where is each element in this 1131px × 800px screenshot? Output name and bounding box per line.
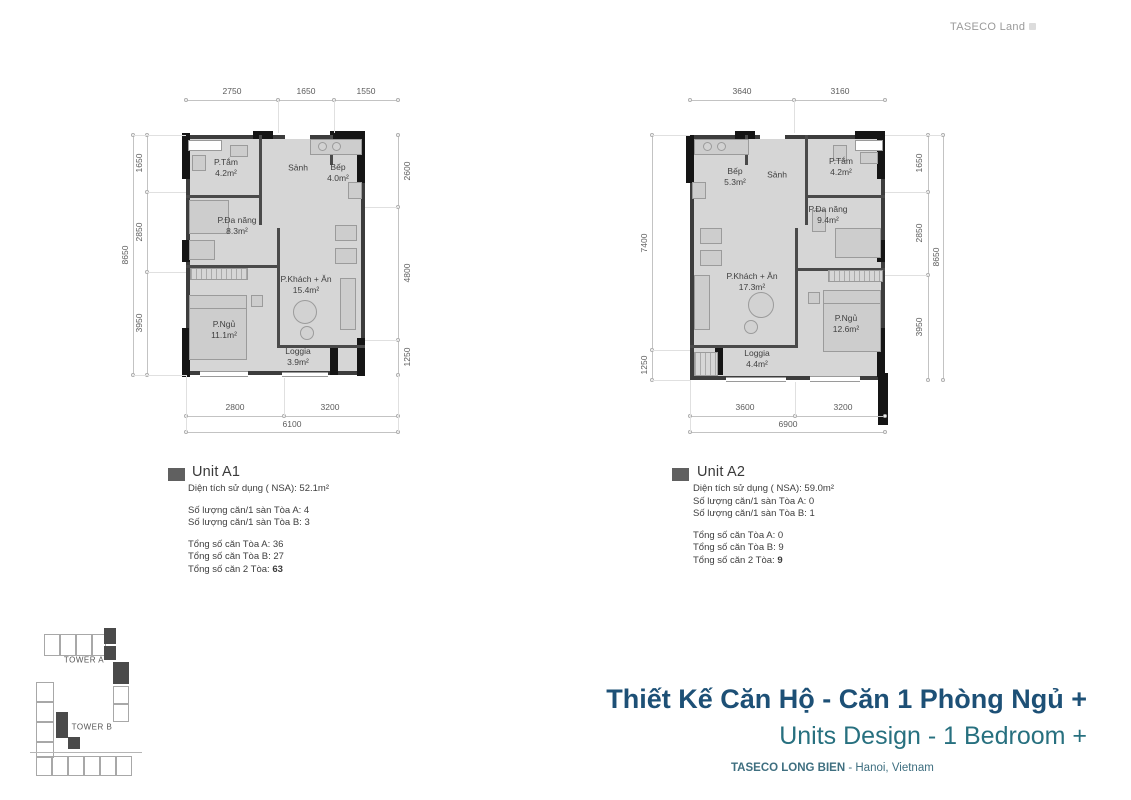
keyplan-cell [113,704,129,722]
page-title-english: Units Design - 1 Bedroom + [779,722,1087,751]
keyplan-cell [52,756,68,776]
dim-tick [883,414,887,418]
dim-tick [396,133,400,137]
extension-line [652,135,690,136]
nsa-line: Diện tích sử dụng ( NSA): 52.1m² [188,483,329,496]
room-label-hall: Sảnh [288,162,308,173]
keyplan-cell [84,756,100,776]
dim-label: 4800 [402,264,412,283]
brand-logo-text: TASECO Land [950,21,1025,33]
wall-column [330,345,338,375]
window [810,376,860,382]
unit-a1-title: Unit A1 [192,464,240,480]
dim-label: 2850 [134,223,144,242]
dim-line [186,416,398,417]
room-label-bathroom: P.Tắm4.2m² [829,156,853,178]
dim-label: 1650 [914,154,924,173]
bathroom-fixture [192,155,206,171]
room-label-multiroom: P.Đa năng8.3m² [217,215,256,237]
grand-total-line: Tổng số căn 2 Tòa: 9 [693,555,834,568]
stove-burner [717,142,726,151]
multiroom-furniture [189,240,215,260]
tower-b-label: TOWER B [72,723,113,732]
keyplan-cell [60,634,76,656]
keyplan-highlight-unit [68,737,80,749]
extension-line [885,192,928,193]
dim-label: 3160 [831,86,850,96]
dim-label: 8650 [931,248,941,267]
keyplan-line [30,752,142,753]
per-floor-line: Số lượng căn/1 sàn Tòa B: 3 [188,517,329,530]
dim-label: 1650 [297,86,316,96]
window [200,371,248,377]
per-floor-line: Số lượng căn/1 sàn Tòa A: 0 [693,496,834,509]
wall-segment [795,228,798,348]
dim-label: 1250 [402,348,412,367]
nightstand [808,292,820,304]
total-line: Tổng số căn Tòa B: 9 [693,542,834,555]
brand-logo: TASECO Land [950,21,1036,33]
keyplan-cell [76,634,92,656]
dim-label: 6100 [283,419,302,429]
dim-line [928,135,929,380]
extension-line [334,100,335,133]
extension-line [885,275,928,276]
extension-line [284,378,285,416]
bathroom-fixture [860,152,878,164]
wall-segment [186,195,262,198]
wardrobe [828,270,883,282]
dining-furniture [335,225,357,241]
room-label-bedroom: P.Ngủ11.1m² [211,319,237,341]
keyplan-cell [36,722,54,742]
per-floor-line: Số lượng căn/1 sàn Tòa B: 1 [693,508,834,521]
dining-furniture [335,248,357,264]
extension-line [147,272,186,273]
dim-label: 6900 [779,419,798,429]
extension-line [278,100,279,133]
nightstand [251,295,263,307]
dim-label: 3200 [834,402,853,412]
loggia-railing [282,372,328,377]
loggia-railing [726,377,786,382]
extension-line [365,207,398,208]
wall-segment [805,195,885,198]
room-label-living-dining: P.Khách + Ăn17.3m² [726,271,777,293]
extension-line [398,375,399,432]
dim-tick [883,430,887,434]
utility-box [694,352,718,376]
legend-square-icon [672,468,689,481]
room-label-bedroom: P.Ngủ12.6m² [833,313,859,335]
dim-line [652,135,653,380]
brand-logo-mark-icon [1029,23,1036,30]
keyplan-cell [116,756,132,776]
stove-burner [332,142,341,151]
room-label-kitchen: Bếp5.3m² [724,166,746,188]
room-label-multiroom: P.Đa năng9.4m² [808,204,847,226]
wall-column [357,338,365,376]
dim-label: 2850 [914,224,924,243]
dim-tick [184,98,188,102]
dim-label: 2800 [226,402,245,412]
tower-a-label: TOWER A [64,656,104,665]
nsa-line: Diện tích sử dụng ( NSA): 59.0m² [693,483,834,496]
keyplan-highlight-unit [104,628,116,644]
project-name-line: TASECO LONG BIEN - Hanoi, Vietnam [731,762,934,774]
dim-line [186,100,398,101]
keyplan-highlight-unit [56,712,68,738]
dim-line [690,100,885,101]
keyplan-highlight-unit [113,662,129,684]
dim-line [690,416,885,417]
keyplan-cell [68,756,84,776]
dim-label: 3950 [914,318,924,337]
keyplan-cell [36,702,54,722]
keyplan-cell [100,756,116,776]
keyplan-cell [36,756,52,776]
round-table [748,292,774,318]
bed-pillow [823,290,881,304]
dim-tick [688,98,692,102]
dining-furniture [700,228,722,244]
extension-line [133,375,186,376]
dim-label: 8650 [120,246,130,265]
room-label-loggia: Loggia3.9m² [285,346,311,368]
bed-pillow [189,295,247,309]
grand-total-line: Tổng số căn 2 Tòa: 63 [188,564,329,577]
project-location: - Hanoi, Vietnam [845,762,934,774]
legend-square-icon [168,468,185,481]
room-label-living-dining: P.Khách + Ăn15.4m² [280,274,331,296]
extension-line [885,135,943,136]
total-line: Tổng số căn Tòa B: 27 [188,551,329,564]
extension-line [186,375,187,432]
dim-tick [941,378,945,382]
extension-line [652,380,690,381]
per-floor-line: Số lượng căn/1 sàn Tòa A: 4 [188,505,329,518]
sofa [694,275,710,330]
room-label-loggia: Loggia4.4m² [744,348,770,370]
room-label-kitchen: Bếp4.0m² [327,162,349,184]
dim-line [690,432,885,433]
dim-tick [883,98,887,102]
extension-line [133,135,186,136]
dim-label: 1650 [134,154,144,173]
extension-line [794,100,795,133]
extension-line [365,340,398,341]
door-opening [285,131,310,139]
dim-label: 3640 [733,86,752,96]
bathroom-fixture [230,145,248,157]
round-table [293,300,317,324]
keyplan-cell [113,686,129,704]
stove-burner [318,142,327,151]
stove-burner [703,142,712,151]
total-line: Tổng số căn Tòa A: 36 [188,539,329,552]
page-title-vietnamese: Thiết Kế Căn Hộ - Căn 1 Phòng Ngủ + [606,684,1087,715]
extension-line [147,192,186,193]
extension-line [652,350,690,351]
dim-label: 3950 [134,314,144,333]
keyplan-cell [36,682,54,702]
wall-column [253,131,273,139]
unit-a1-details: Diện tích sử dụng ( NSA): 52.1m² Số lượn… [188,483,329,576]
door-opening [760,131,785,139]
sofa [340,278,356,330]
wall-segment [259,135,262,225]
window [855,140,883,151]
dim-tick [926,378,930,382]
dim-label: 7400 [639,234,649,253]
multiroom-furniture [835,228,881,258]
dim-label: 1550 [357,86,376,96]
extension-line [690,380,691,432]
keyplan-highlight-unit [104,646,116,660]
page-canvas: TASECO Land [0,0,1131,800]
fridge [348,182,362,199]
window [188,140,222,151]
dim-label: 3600 [736,402,755,412]
dim-label: 2750 [223,86,242,96]
round-stool [744,320,758,334]
project-name: TASECO LONG BIEN [731,762,845,774]
keyplan-cell [44,634,60,656]
dining-furniture [700,250,722,266]
unit-a2-details: Diện tích sử dụng ( NSA): 59.0m² Số lượn… [693,483,834,567]
dim-line [186,432,398,433]
wall-column [686,135,694,183]
dim-tick [396,98,400,102]
room-label-hall: Sảnh [767,169,787,180]
unit-a2-title: Unit A2 [697,464,745,480]
dim-label: 3200 [321,402,340,412]
round-stool [300,326,314,340]
fridge [692,182,706,199]
dim-line [147,135,148,375]
room-label-bathroom: P.Tắm4.2m² [214,157,238,179]
extension-line [795,382,796,416]
total-line: Tổng số căn Tòa A: 0 [693,530,834,543]
dim-label: 1250 [639,356,649,375]
dim-line [943,135,944,380]
wardrobe [190,268,248,280]
dim-label: 2600 [402,162,412,181]
